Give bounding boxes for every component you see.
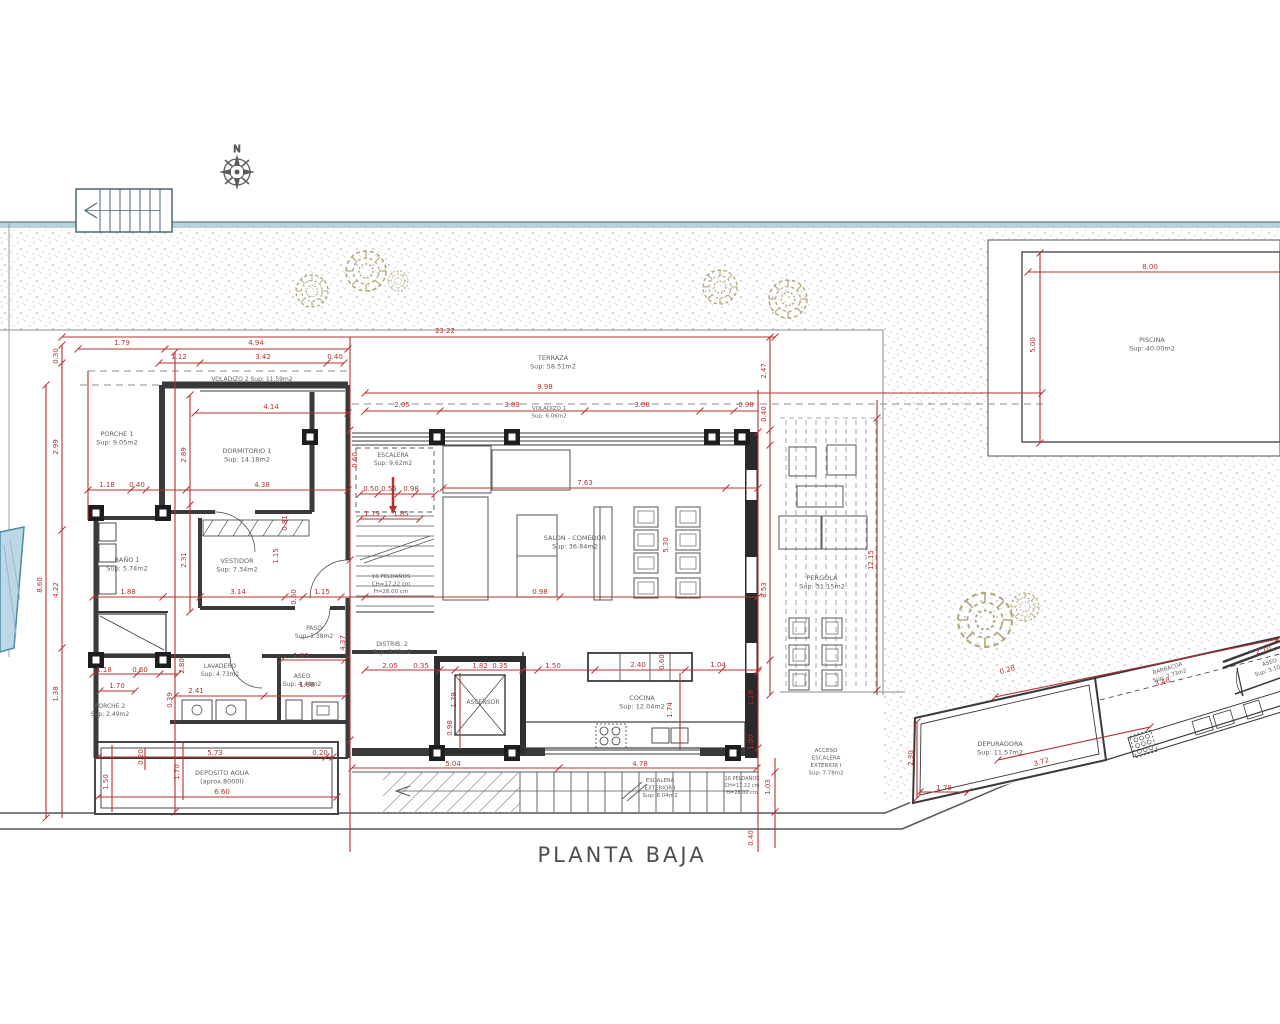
pergola-furniture — [779, 445, 867, 690]
room-label: ASEOSup: 4.44m2 — [283, 673, 322, 688]
dimension-label: 0.98 — [403, 485, 419, 493]
dimension-label: 12.15 — [867, 550, 875, 570]
dimension-label: 1.18 — [96, 666, 112, 674]
dimension-label: 0.40 — [129, 481, 145, 489]
room-label: LAVADEROSup: 4.73m2 — [201, 663, 240, 678]
dimension-label: 1.04 — [710, 661, 726, 669]
room-label: VOLADIZO 2 Sup: 11.59m2 — [211, 376, 293, 383]
room-label: DORMITORIO 1Sup: 14.18m2 — [222, 447, 271, 464]
dimension-label: 1.85 — [393, 510, 409, 518]
dimension-label: 0.60 — [351, 452, 359, 468]
dimension-label: 2.05 — [394, 401, 410, 409]
dimension-label: 0.60 — [132, 666, 148, 674]
room-label: COCINASup: 12.04m2 — [619, 694, 665, 711]
dimension-label: 8.60 — [36, 577, 44, 593]
dimension-label: 0.40 — [760, 406, 768, 422]
dimension-label: 1.12 — [171, 353, 187, 361]
dimension-label: 1.19 — [747, 690, 755, 706]
salon-furniture — [443, 446, 700, 600]
dimension-label: 1.15 — [272, 548, 280, 564]
dimension-label: 0.55 — [381, 485, 397, 493]
room-label: DISTRIB. 2Sup: 3.13m2 — [373, 641, 412, 656]
dimension-label: 1.38 — [52, 686, 60, 702]
dimension-label: 0.20 — [137, 749, 145, 765]
north-compass-icon: N — [219, 144, 255, 190]
exterior-stairs — [352, 772, 758, 812]
dimension-label: 1.15 — [314, 588, 330, 596]
dimension-label: 2.47 — [760, 363, 768, 379]
room-label: SALON - COMEDORSup: 36.84m2 — [544, 534, 607, 551]
room-label: ESCALERASup: 9.62m2 — [374, 452, 413, 467]
dimension-label: 0.98 — [738, 401, 754, 409]
dimension-label: 9.98 — [537, 383, 553, 391]
room-label: PASOSup: 1.38m2 — [295, 625, 334, 640]
floor-plan-page: N 23.221.794.941.123.420.404.149.982.053… — [0, 0, 1280, 1024]
dimension-label: 4.22 — [52, 582, 60, 598]
room-label: DEPOSITO AGUA(aprox.8000l) — [195, 769, 249, 786]
dimension-label: 0.35 — [413, 662, 429, 670]
room-label: DEPURADORASup: 11.57m2 — [977, 740, 1023, 757]
dimension-label: 4.78 — [632, 760, 648, 768]
dimension-label: 3.14 — [230, 588, 246, 596]
dimension-label: 5.00 — [1029, 337, 1037, 353]
dimension-label: 1.03 — [764, 779, 772, 795]
dimension-label: 4.14 — [263, 403, 279, 411]
dimension-label: 0.20 — [312, 749, 328, 757]
dimension-label: 1.18 — [99, 481, 115, 489]
dimension-label: 4.94 — [248, 339, 264, 347]
room-label: PORCHE 2Sup: 2.49m2 — [91, 703, 130, 718]
room-label: 16 PELDAÑOSCH=17.22 cmH=28.00 cm — [372, 573, 411, 595]
page-title: PLANTA BAJA — [537, 843, 706, 867]
dimension-label: 1.79 — [450, 692, 458, 708]
dimension-label: 3.42 — [255, 353, 271, 361]
room-label: ESCALERAEXTERIOR ISup: 8.04m2 — [642, 778, 677, 799]
dimension-label: 1.82 — [472, 662, 488, 670]
dimension-label: 1.00 — [747, 734, 755, 750]
dimension-label: 0.60 — [290, 589, 298, 605]
room-label: TERRAZASup: 58.51m2 — [530, 354, 576, 371]
room-label: VOLADIZO 1Sup: 6.06m2 — [531, 406, 566, 420]
dimension-label: 1.70 — [109, 682, 125, 690]
dimension-label: 8.53 — [760, 582, 768, 598]
dimension-label: 0.30 — [52, 348, 60, 364]
dimension-label: 1.50 — [545, 662, 561, 670]
water-feature — [0, 527, 24, 652]
dimension-label: 4.38 — [254, 481, 270, 489]
dimension-label: 0.40 — [327, 353, 343, 361]
dimension-label: 1.19 — [364, 510, 380, 518]
dimension-label: 7.63 — [577, 479, 593, 487]
floor-plan-canvas: N 23.221.794.941.123.420.404.149.982.053… — [0, 0, 1280, 1024]
dimension-label: 2.05 — [382, 662, 398, 670]
dimension-label: 8.00 — [1142, 263, 1158, 271]
room-label: PERGOLASup: 31.15m2 — [799, 574, 845, 591]
dimension-label: 2.80 — [178, 658, 186, 674]
dimension-label: 1.88 — [120, 588, 136, 596]
dimension-label: 1.79 — [114, 339, 130, 347]
dimension-label: 1.70 — [173, 764, 181, 780]
compass-north-label: N — [233, 144, 240, 155]
dimension-label: 1.74 — [666, 702, 674, 718]
entry-stairs — [76, 189, 172, 232]
room-label: PORCHE 1Sup: 9.05m2 — [96, 430, 138, 447]
dimension-label: 23.22 — [435, 327, 455, 335]
dimension-label: 0.39 — [166, 692, 174, 708]
structural-pillars — [88, 429, 750, 761]
room-label: 16 PELDAÑOSCH=17.22 cmH=28.00 cm — [725, 775, 760, 796]
dimension-label: 0.81 — [281, 515, 289, 531]
dimension-label: 0.98 — [532, 588, 548, 596]
dimension-label: 0.35 — [492, 662, 508, 670]
dimension-label: 1.78 — [936, 784, 952, 792]
room-label: ACCESOESCALERAEXTERIOR ISup: 7.78m2 — [808, 748, 843, 777]
dimension-label: 0.60 — [658, 654, 666, 670]
dimension-label: 0.50 — [363, 485, 379, 493]
dimension-label: 5.73 — [207, 749, 223, 757]
dimension-label: 4.37 — [339, 635, 347, 651]
dimension-label: 2.30 — [907, 750, 915, 766]
room-label: ASCENSOR — [466, 699, 499, 706]
room-label: VESTIDORSup: 7.34m2 — [216, 557, 258, 574]
dimension-label: 3.08 — [634, 401, 650, 409]
dimension-label: 6.60 — [214, 788, 230, 796]
dimension-label: 5.30 — [662, 537, 670, 553]
dimension-label: 3.89 — [504, 401, 520, 409]
dimension-label: 2.89 — [180, 447, 188, 463]
dimension-label: 2.99 — [52, 439, 60, 455]
dimension-label: 2.40 — [630, 661, 646, 669]
ramp-hatch — [383, 772, 520, 812]
dimension-label: 0.40 — [747, 830, 755, 846]
dimension-label: 5.04 — [445, 760, 461, 768]
dimension-label: 0.98 — [446, 720, 454, 736]
room-label: BAÑO 1Sup: 5.74m2 — [106, 555, 148, 573]
dimension-label: 2.41 — [188, 687, 204, 695]
dimension-label: 2.31 — [180, 552, 188, 568]
dimension-label: 1.83 — [293, 652, 309, 660]
dimension-label: 1.50 — [102, 774, 110, 790]
